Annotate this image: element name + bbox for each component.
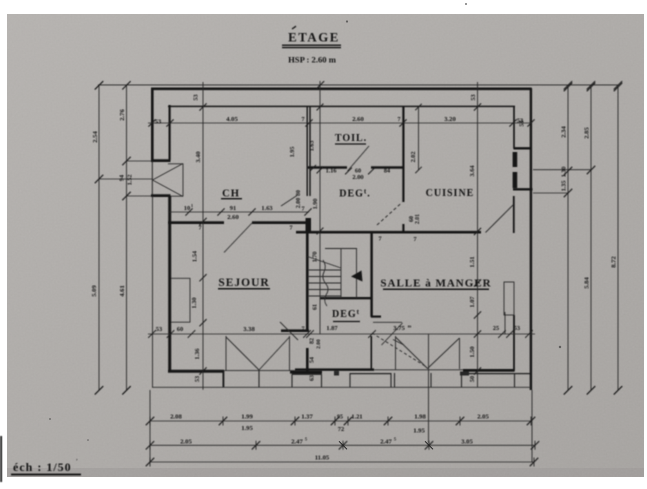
svg-text:5.84: 5.84 xyxy=(584,277,591,289)
svg-text:1.54: 1.54 xyxy=(192,250,199,262)
svg-text:2.05: 2.05 xyxy=(180,439,192,446)
svg-text:60: 60 xyxy=(177,326,183,333)
svg-text:2.60: 2.60 xyxy=(227,214,239,221)
svg-text:3.75: 3.75 xyxy=(393,325,405,332)
svg-text:1.95: 1.95 xyxy=(241,425,253,432)
svg-text:84: 84 xyxy=(384,167,390,174)
svg-text:2.85: 2.85 xyxy=(584,127,591,139)
svg-text:1.35: 1.35 xyxy=(561,181,568,192)
svg-text:ETAGE: ETAGE xyxy=(288,31,340,45)
svg-text:1.36: 1.36 xyxy=(194,348,201,360)
svg-text:53: 53 xyxy=(519,120,526,126)
svg-text:3.05: 3.05 xyxy=(461,439,473,446)
svg-text:72: 72 xyxy=(338,426,344,433)
svg-text:1.07: 1.07 xyxy=(469,296,476,308)
svg-text:2.00: 2.00 xyxy=(296,198,302,209)
svg-text:3.40: 3.40 xyxy=(195,151,202,162)
svg-text:80: 80 xyxy=(296,190,302,196)
svg-text:3.38: 3.38 xyxy=(243,326,255,333)
svg-text:2.01: 2.01 xyxy=(415,214,421,224)
svg-text:TOIL.: TOIL. xyxy=(335,133,367,144)
svg-text:2.47: 2.47 xyxy=(380,439,392,446)
svg-text:1.21: 1.21 xyxy=(351,414,362,421)
svg-text:5.09: 5.09 xyxy=(91,285,98,297)
svg-text:3.20: 3.20 xyxy=(444,116,456,123)
svg-text:1.87: 1.87 xyxy=(326,325,338,332)
svg-text:7: 7 xyxy=(302,327,305,333)
svg-text:2.00: 2.00 xyxy=(316,339,322,349)
svg-text:1.30: 1.30 xyxy=(191,297,198,308)
svg-text:CUISINE: CUISINE xyxy=(426,188,475,199)
svg-text:7: 7 xyxy=(199,226,202,232)
svg-text:1.70: 1.70 xyxy=(312,252,319,263)
svg-text:1.16: 1.16 xyxy=(326,167,337,174)
svg-text:7: 7 xyxy=(290,226,293,232)
svg-text:2.60: 2.60 xyxy=(352,116,364,123)
svg-text:7: 7 xyxy=(301,116,304,123)
svg-text:82: 82 xyxy=(310,338,316,344)
svg-text:1.98: 1.98 xyxy=(414,414,426,421)
svg-text:94: 94 xyxy=(119,175,126,181)
svg-text:10: 10 xyxy=(184,205,190,212)
svg-text:91: 91 xyxy=(230,205,236,212)
svg-text:1.95: 1.95 xyxy=(413,428,425,435)
svg-text:1.50: 1.50 xyxy=(469,346,476,357)
svg-text:53: 53 xyxy=(156,326,162,333)
svg-text:53: 53 xyxy=(155,118,162,125)
svg-text:53: 53 xyxy=(193,94,200,100)
svg-text:2.05: 2.05 xyxy=(477,414,489,421)
svg-text:53: 53 xyxy=(514,325,520,332)
svg-text:1.95: 1.95 xyxy=(289,147,296,158)
svg-text:1.63: 1.63 xyxy=(261,205,272,212)
svg-text:8.72: 8.72 xyxy=(611,256,618,268)
svg-text:éch : 1/50: éch : 1/50 xyxy=(13,460,72,474)
svg-text:7: 7 xyxy=(397,116,400,123)
svg-text:7: 7 xyxy=(414,237,417,243)
svg-text:4.61: 4.61 xyxy=(119,285,126,297)
svg-text:53: 53 xyxy=(470,94,477,100)
svg-text:11.05: 11.05 xyxy=(315,454,330,461)
svg-text:SALLE à MANGER: SALLE à MANGER xyxy=(380,278,491,290)
svg-text:25: 25 xyxy=(493,325,499,332)
svg-text:2.47: 2.47 xyxy=(291,439,303,446)
svg-text:1.37: 1.37 xyxy=(301,414,313,421)
svg-text:2.08: 2.08 xyxy=(170,414,182,421)
svg-text:63: 63 xyxy=(310,375,316,381)
svg-text:4.05: 4.05 xyxy=(226,116,238,123)
svg-text:2.02: 2.02 xyxy=(410,152,417,163)
svg-text:1.90: 1.90 xyxy=(312,199,319,210)
svg-text:95: 95 xyxy=(337,414,343,420)
svg-text:1.63: 1.63 xyxy=(309,141,316,152)
svg-text:CH: CH xyxy=(222,189,240,200)
svg-text:1: 1 xyxy=(191,203,193,208)
svg-text:m: m xyxy=(408,324,412,329)
svg-text:50: 50 xyxy=(469,376,476,382)
svg-text:2.00: 2.00 xyxy=(352,174,363,181)
svg-text:1.30: 1.30 xyxy=(561,167,568,178)
svg-text:53: 53 xyxy=(194,376,201,382)
svg-text:7: 7 xyxy=(379,237,382,243)
svg-text:54: 54 xyxy=(310,357,316,363)
svg-text:SEJOUR: SEJOUR xyxy=(218,277,269,289)
svg-text:1.52: 1.52 xyxy=(127,175,134,186)
svg-text:2.54: 2.54 xyxy=(92,131,99,143)
svg-text:1.99: 1.99 xyxy=(241,414,253,421)
svg-text:2.76: 2.76 xyxy=(119,109,126,121)
svg-text:DEGt: DEGt xyxy=(332,308,360,320)
svg-text:2.34: 2.34 xyxy=(561,126,568,138)
svg-text:HSP : 2.60 m: HSP : 2.60 m xyxy=(288,55,337,65)
svg-text:1.51: 1.51 xyxy=(469,256,476,267)
svg-text:3.64: 3.64 xyxy=(469,165,476,177)
svg-text:61: 61 xyxy=(313,304,319,310)
